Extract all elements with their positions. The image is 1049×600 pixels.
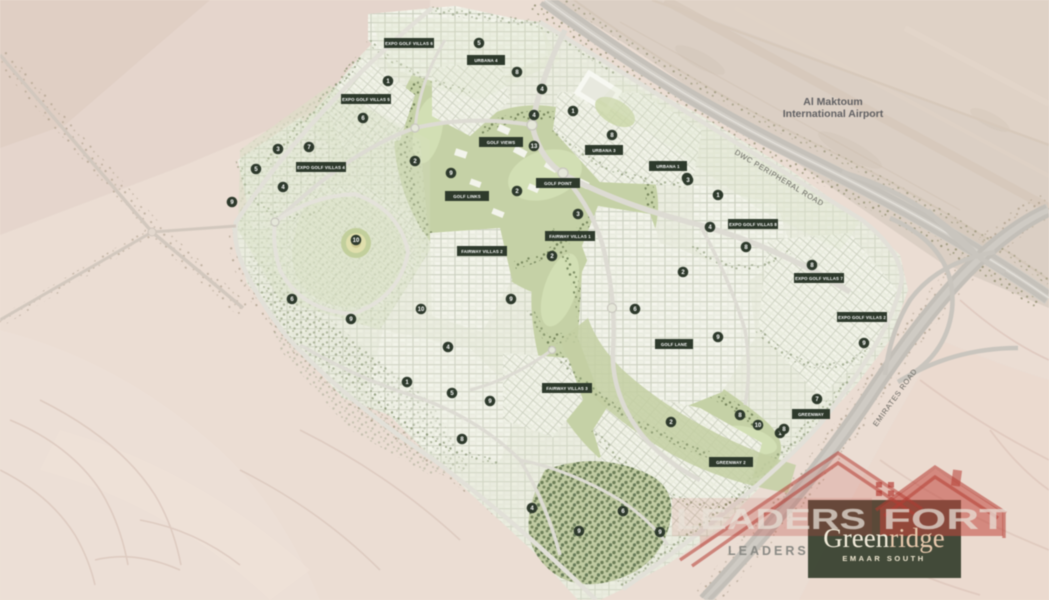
svg-text:GOLF VIEWS: GOLF VIEWS (487, 140, 515, 145)
svg-text:URBANA 4: URBANA 4 (474, 58, 498, 63)
svg-text:EMAAR SOUTH: EMAAR SOUTH (842, 554, 925, 563)
svg-text:GOLF LINKS: GOLF LINKS (453, 194, 481, 199)
svg-text:EXPO GOLF VILLAS 7: EXPO GOLF VILLAS 7 (795, 276, 843, 281)
svg-text:13: 13 (531, 144, 538, 150)
svg-text:URBANA 1: URBANA 1 (656, 164, 680, 169)
svg-text:10: 10 (353, 238, 360, 244)
svg-text:LEADERS: LEADERS (728, 544, 809, 558)
svg-text:FAIRWAY VILLAS 2: FAIRWAY VILLAS 2 (461, 249, 503, 254)
svg-text:10: 10 (755, 423, 762, 429)
svg-text:EXPO GOLF VILLAS 8: EXPO GOLF VILLAS 8 (729, 222, 777, 227)
svg-text:10: 10 (418, 307, 425, 313)
svg-text:EXPO GOLF VILLAS 4: EXPO GOLF VILLAS 4 (297, 165, 345, 170)
svg-text:FAIRWAY VILLAS 1: FAIRWAY VILLAS 1 (549, 234, 591, 239)
svg-text:GOLF LANE: GOLF LANE (661, 342, 687, 347)
svg-text:FAIRWAY VILLAS 3: FAIRWAY VILLAS 3 (546, 386, 588, 391)
svg-text:Al Maktoum: Al Maktoum (803, 96, 863, 108)
svg-text:Greenridge: Greenridge (823, 523, 944, 553)
svg-text:GREENWAY 2: GREENWAY 2 (716, 460, 746, 465)
svg-text:GOLF POINT: GOLF POINT (544, 181, 572, 186)
svg-text:International Airport: International Airport (783, 108, 884, 120)
svg-text:EXPO GOLF VILLAS 2: EXPO GOLF VILLAS 2 (838, 315, 886, 320)
svg-text:EXPO GOLF VILLAS 5: EXPO GOLF VILLAS 5 (342, 97, 390, 102)
svg-text:URBANA 3: URBANA 3 (592, 148, 616, 153)
svg-text:GREENWAY: GREENWAY (798, 412, 824, 417)
svg-text:EXPO GOLF VILLAS 6: EXPO GOLF VILLAS 6 (385, 41, 433, 46)
